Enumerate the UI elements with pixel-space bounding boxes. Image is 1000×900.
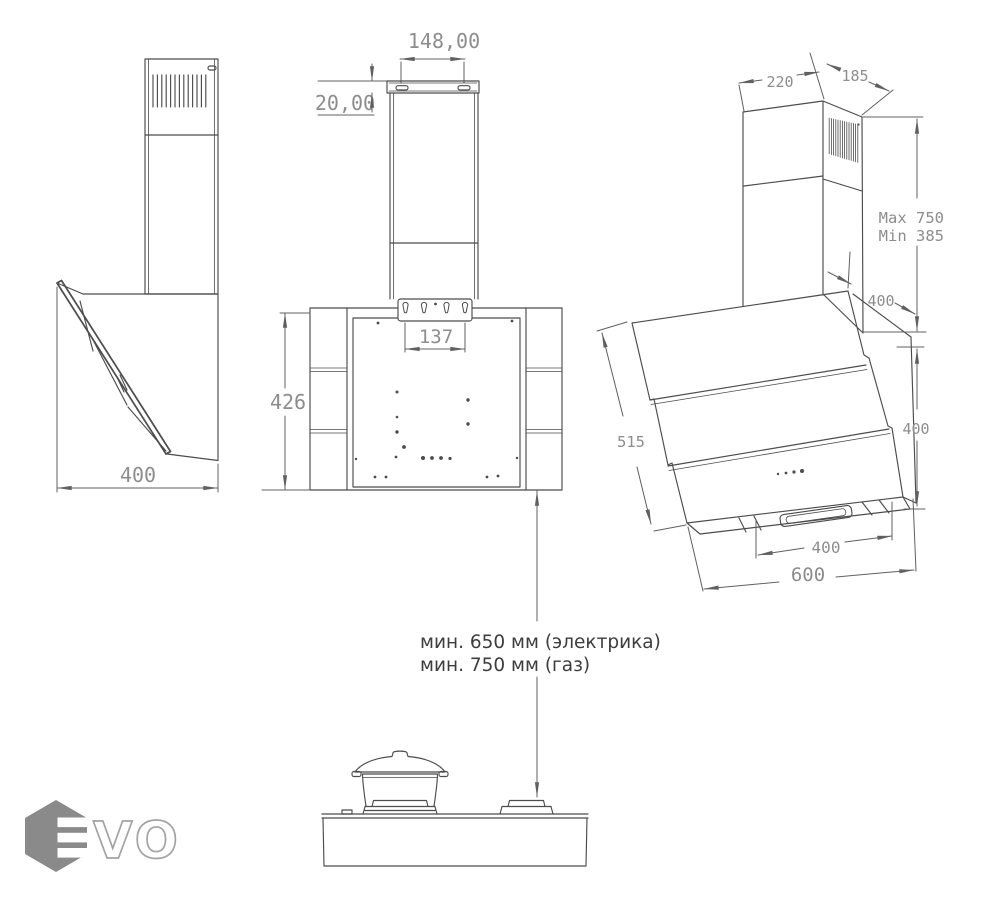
pot (352, 751, 448, 806)
logo-wordmark: VO (93, 812, 181, 871)
dim-top-depth: 400 (867, 292, 894, 310)
dim-chimney-width: 185 (841, 67, 868, 85)
side-view: 400 (57, 59, 218, 492)
persp-underside (687, 497, 910, 534)
side-hood-body (83, 294, 218, 461)
persp-vent-grille (829, 118, 858, 162)
install-note-electric: мин. 650 мм (электрика) (420, 632, 661, 653)
side-vent-grille (153, 75, 206, 107)
dim-bracket-span: 137 (419, 326, 453, 348)
dim-front-top-height: 20,00 (315, 91, 375, 115)
dim-side-width: 400 (120, 463, 156, 487)
persp-glass-front (632, 291, 903, 523)
dim-persp-body-height: 400 (902, 420, 929, 438)
installation-diagram: мин. 650 мм (электрика) мин. 750 мм (газ… (322, 491, 661, 866)
touch-controls (777, 469, 804, 475)
burner-right (500, 801, 553, 815)
side-chimney (145, 59, 218, 294)
dim-glass-length: 515 (617, 433, 645, 451)
burner-left (363, 801, 437, 815)
dim-body-height: 426 (270, 390, 306, 414)
manual-page: 400 148,00 20,00 (0, 0, 1000, 900)
technical-drawing: 400 148,00 20,00 (0, 0, 1000, 900)
perspective-view: 220 185 Max 750 Min 385 400 515 400 400 (597, 53, 944, 591)
dim-front-top-width: 148,00 (408, 29, 480, 53)
mounting-bracket (398, 299, 472, 321)
front-view: 148,00 20,00 (262, 29, 562, 490)
dim-outlet-width: 400 (812, 538, 841, 557)
dim-chimney-depth: 220 (766, 73, 793, 91)
evo-logo: VO (25, 800, 181, 872)
cooktop-counter (322, 814, 588, 866)
dim-height-min: Min 385 (879, 227, 944, 245)
dim-total-width: 600 (791, 564, 825, 586)
dim-height-max: Max 750 (879, 209, 944, 227)
side-glass-panel (57, 281, 171, 455)
front-chimney (390, 93, 478, 299)
install-note-gas: мин. 750 мм (газ) (420, 655, 590, 676)
